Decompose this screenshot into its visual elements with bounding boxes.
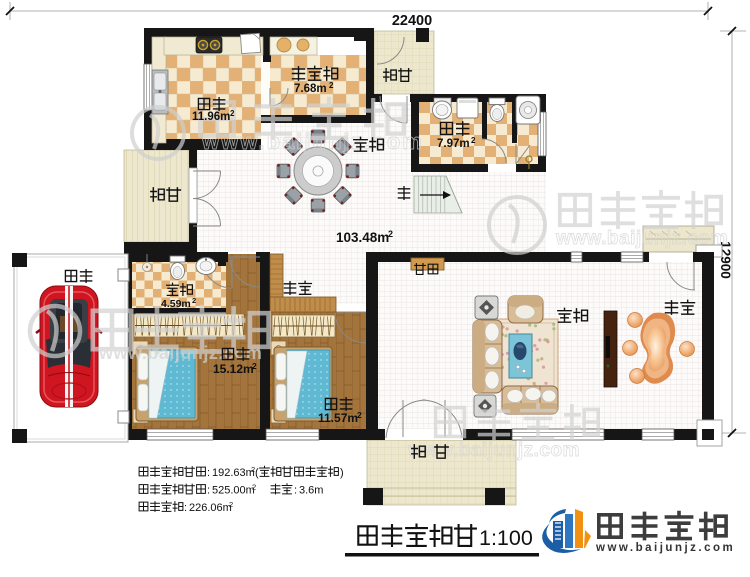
svg-text:2: 2 xyxy=(329,81,334,90)
svg-text:): ) xyxy=(340,467,344,479)
svg-text:2: 2 xyxy=(471,136,476,145)
svg-text:(: ( xyxy=(255,467,259,479)
svg-text:2: 2 xyxy=(357,410,362,420)
svg-text:2: 2 xyxy=(229,500,233,509)
svg-text::: : xyxy=(207,467,210,479)
svg-text:3.6m: 3.6m xyxy=(299,485,323,497)
svg-text:7.68m: 7.68m xyxy=(294,83,327,95)
svg-text:www.baijunjz.com: www.baijunjz.com xyxy=(407,440,580,461)
svg-text:103.48m: 103.48m xyxy=(336,230,389,245)
svg-text:525.00m: 525.00m xyxy=(212,485,255,497)
svg-text:www.baijunjz.com: www.baijunjz.com xyxy=(98,343,262,363)
svg-text:192.63m: 192.63m xyxy=(212,467,255,479)
svg-text:www.baijunjz.com: www.baijunjz.com xyxy=(595,542,735,554)
svg-text:2: 2 xyxy=(252,361,257,371)
svg-text::: : xyxy=(184,502,187,514)
svg-text:1:100: 1:100 xyxy=(479,526,533,550)
svg-text:4.59m: 4.59m xyxy=(161,298,191,310)
svg-text:11.96m: 11.96m xyxy=(192,111,230,123)
svg-text:2: 2 xyxy=(252,483,256,492)
svg-text::: : xyxy=(207,485,210,497)
svg-text:www.baijunjz.com: www.baijunjz.com xyxy=(201,129,424,154)
svg-text:11.57m: 11.57m xyxy=(318,411,358,425)
svg-text:226.06m: 226.06m xyxy=(189,502,232,514)
svg-text:2: 2 xyxy=(230,109,235,118)
svg-text:7.97m: 7.97m xyxy=(437,138,470,150)
svg-text:15.12m: 15.12m xyxy=(213,362,254,376)
svg-text:2: 2 xyxy=(192,296,196,305)
svg-text:22400: 22400 xyxy=(392,13,432,29)
svg-text::: : xyxy=(294,485,297,497)
svg-text:www.baijunjz.com: www.baijunjz.com xyxy=(555,228,728,249)
svg-text:2: 2 xyxy=(388,229,393,239)
